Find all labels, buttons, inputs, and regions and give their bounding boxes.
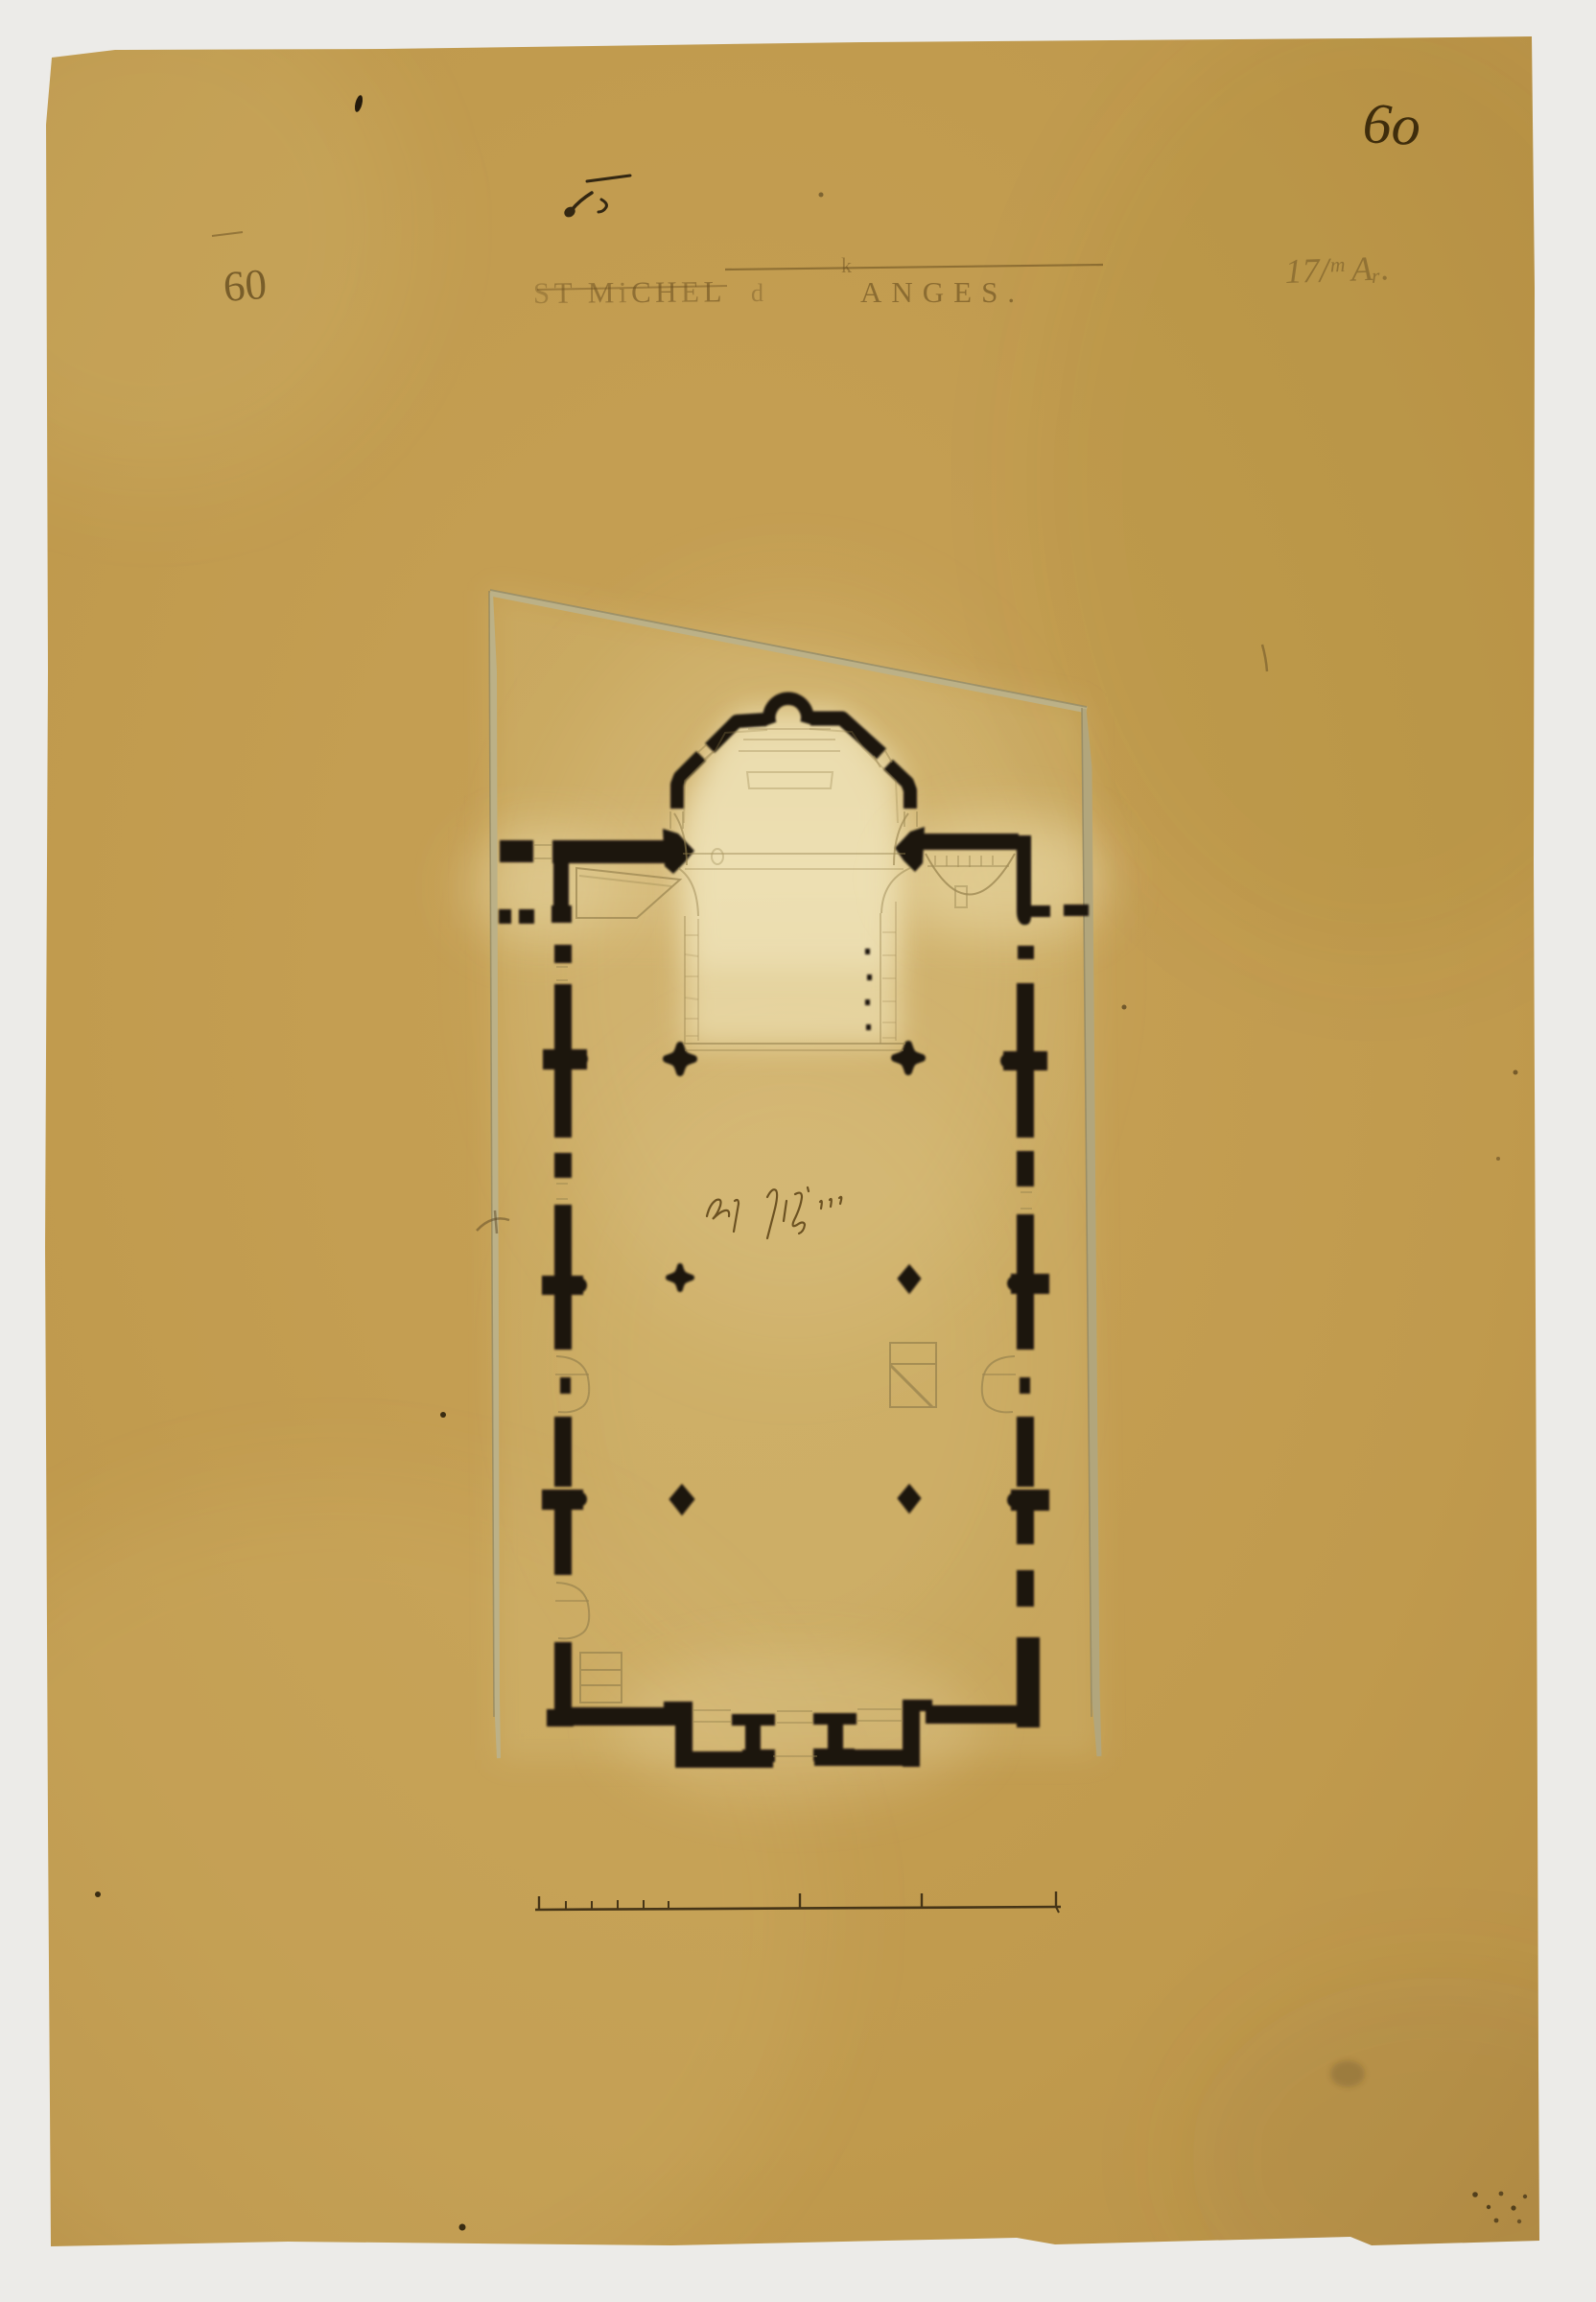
svg-text:60: 60: [222, 260, 268, 311]
svg-text:ST MiCHEL: ST MiCHEL: [533, 274, 726, 310]
svg-text:k: k: [841, 253, 852, 277]
svg-text:ANGES.: ANGES.: [860, 275, 1024, 309]
svg-text:d: d: [751, 279, 763, 307]
svg-text:17/ᵐ Aᵣ.: 17/ᵐ Aᵣ.: [1284, 248, 1391, 291]
svg-text:6o: 6o: [1361, 91, 1421, 157]
